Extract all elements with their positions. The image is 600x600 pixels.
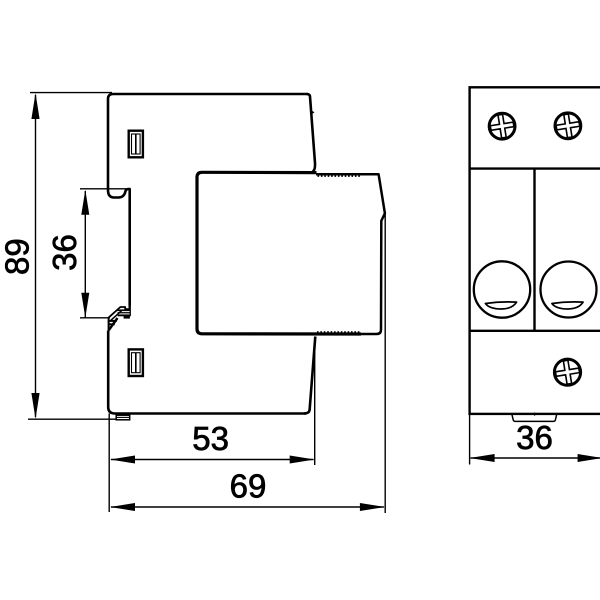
svg-text:53: 53 [192,420,229,457]
svg-text:36: 36 [516,419,553,456]
svg-text:89: 89 [0,238,36,275]
svg-text:69: 69 [230,468,267,505]
svg-text:36: 36 [46,234,83,271]
